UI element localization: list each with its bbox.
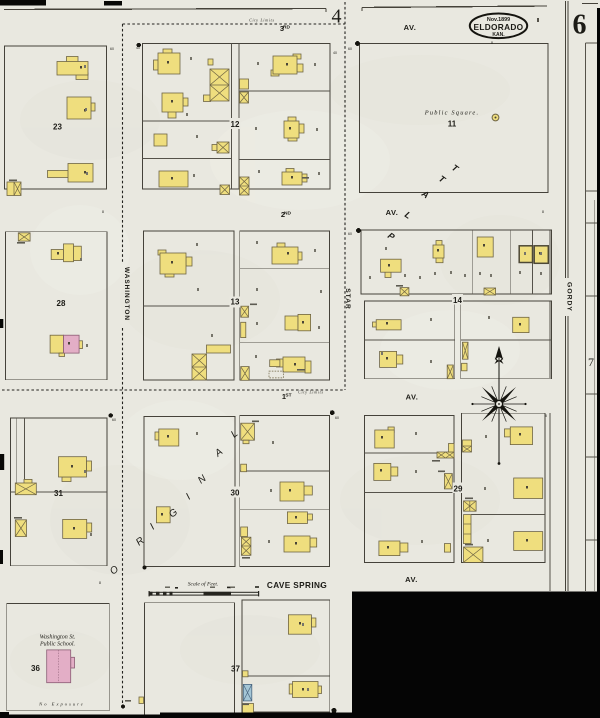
svg-text:City Limits: City Limits — [298, 391, 324, 395]
svg-text:13: 13 — [231, 298, 240, 307]
svg-text:WASHINGTON: WASHINGTON — [123, 267, 130, 321]
svg-text:RD: RD — [283, 25, 290, 31]
svg-text:City Limits: City Limits — [249, 19, 275, 23]
svg-text:AV.: AV. — [404, 23, 417, 32]
svg-text:Public School.: Public School. — [39, 642, 75, 648]
svg-text:60: 60 — [348, 47, 352, 51]
svg-text:8: 8 — [545, 414, 547, 418]
svg-text:12: 12 — [231, 120, 240, 129]
svg-text:37: 37 — [231, 665, 240, 674]
svg-text:30: 30 — [231, 489, 240, 498]
svg-text:28: 28 — [57, 299, 66, 308]
svg-text:AV.: AV. — [405, 575, 418, 584]
svg-text:8: 8 — [491, 41, 493, 45]
svg-text:60: 60 — [348, 232, 352, 236]
svg-text:14: 14 — [453, 296, 462, 305]
svg-text:AV.: AV. — [386, 208, 399, 217]
svg-text:ST: ST — [285, 393, 291, 399]
svg-text:Scale of Feet.: Scale of Feet. — [188, 581, 219, 588]
svg-text:8: 8 — [320, 584, 322, 588]
svg-text:31: 31 — [54, 489, 63, 498]
svg-text:4: 4 — [332, 6, 342, 28]
svg-text:CAVE SPRING: CAVE SPRING — [267, 581, 327, 590]
svg-text:60: 60 — [112, 418, 116, 422]
svg-text:GORDY: GORDY — [566, 282, 573, 312]
svg-text:KAN.: KAN. — [492, 32, 505, 38]
svg-text:60: 60 — [335, 416, 339, 420]
svg-text:ELDORADO: ELDORADO — [474, 22, 524, 32]
svg-text:11: 11 — [448, 120, 457, 129]
svg-text:40: 40 — [333, 51, 337, 55]
svg-text:8: 8 — [102, 210, 104, 214]
svg-text:7: 7 — [588, 355, 594, 369]
svg-text:6: 6 — [573, 10, 587, 41]
svg-text:AV.: AV. — [406, 393, 419, 402]
svg-text:8: 8 — [542, 210, 544, 214]
svg-text:Washington St.: Washington St. — [40, 635, 76, 641]
svg-text:No Exposure: No Exposure — [38, 702, 85, 707]
svg-text:36: 36 — [31, 664, 40, 673]
svg-text:40: 40 — [136, 46, 140, 50]
svg-text:Public Square.: Public Square. — [424, 110, 480, 117]
svg-text:60: 60 — [110, 47, 114, 51]
svg-text:STAR: STAR — [344, 288, 351, 309]
svg-text:8: 8 — [99, 581, 101, 585]
svg-text:29: 29 — [454, 485, 463, 494]
svg-text:ND: ND — [284, 211, 291, 217]
svg-text:23: 23 — [53, 123, 62, 132]
